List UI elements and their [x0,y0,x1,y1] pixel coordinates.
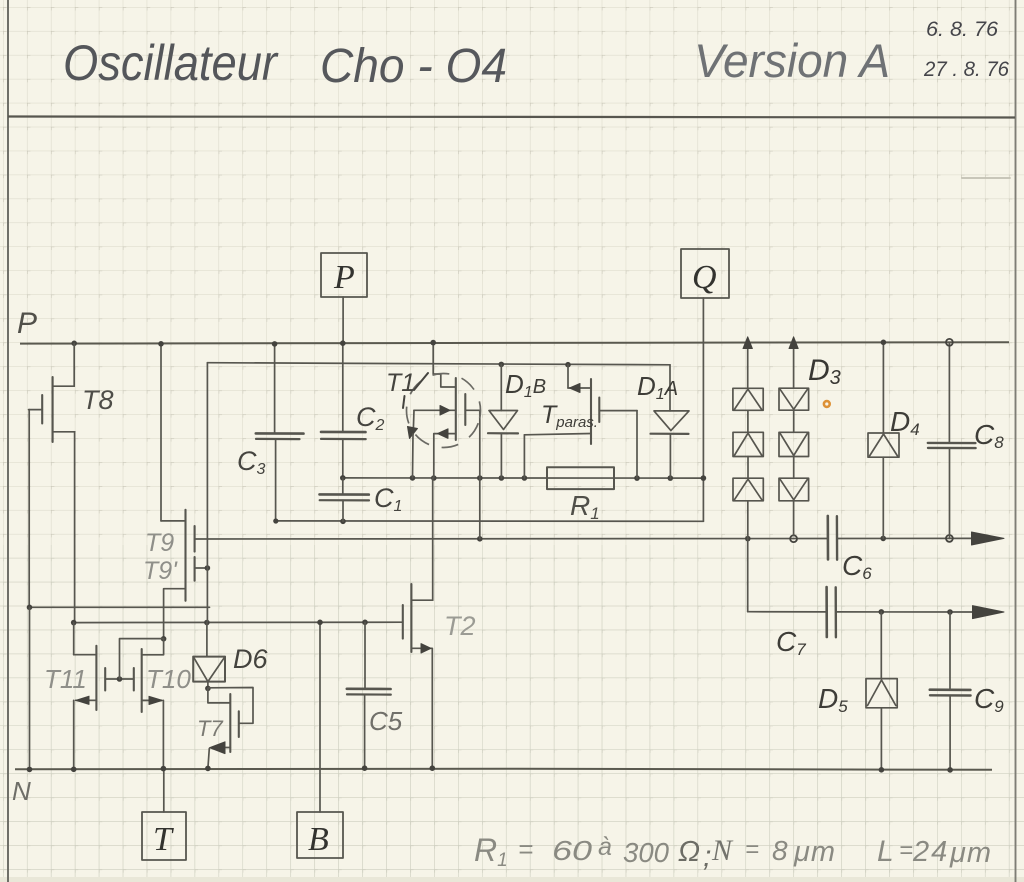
svg-text:T8: T8 [82,385,114,415]
svg-text:Cho - O4: Cho - O4 [320,40,507,93]
svg-text:D6: D6 [233,644,268,674]
svg-text:=: = [518,834,533,864]
svg-text:T9': T9' [143,557,178,585]
svg-text:T9: T9 [145,529,174,557]
svg-text:27 . 8. 76: 27 . 8. 76 [923,58,1009,81]
svg-text:à: à [598,833,612,861]
svg-text:Q: Q [692,259,717,296]
svg-text:μm: μm [949,837,992,869]
svg-text:=: = [899,837,913,864]
svg-text:;: ; [703,840,711,873]
svg-text:24: 24 [912,836,949,868]
svg-text:B: B [308,821,329,858]
svg-text:T10: T10 [146,664,191,694]
svg-text:Version A: Version A [694,34,890,87]
svg-text:P: P [17,307,37,340]
svg-text:T: T [153,821,174,858]
svg-text:N: N [711,834,734,867]
svg-text:N: N [12,776,31,806]
svg-text:μm: μm [793,836,836,868]
svg-text:Ω: Ω [678,836,700,868]
svg-text:Oscillateur: Oscillateur [63,35,279,91]
svg-text:P: P [333,259,355,296]
svg-text:L: L [877,835,894,868]
svg-text:60: 60 [552,835,593,866]
svg-text:300: 300 [623,837,669,868]
svg-text:T11: T11 [44,664,87,694]
svg-text:T7: T7 [197,716,223,741]
svg-text:C5: C5 [369,706,403,736]
svg-text:T1: T1 [386,369,415,397]
svg-text:=: = [745,836,759,863]
svg-text:8: 8 [772,835,788,866]
svg-text:6. 8. 76: 6. 8. 76 [926,18,998,41]
svg-text:T2: T2 [444,611,476,641]
